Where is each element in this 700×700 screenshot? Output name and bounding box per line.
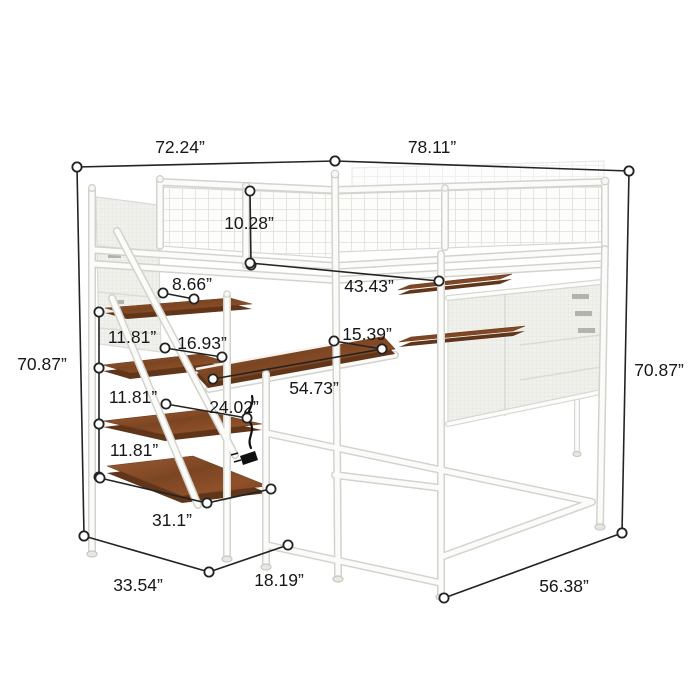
dimension-endpoint (329, 336, 338, 345)
dimension-endpoint (624, 166, 633, 175)
dimension-endpoint (72, 162, 81, 171)
dimension-endpoint (158, 288, 167, 297)
dimension-endpoint (439, 593, 448, 602)
dimension-endpoint (245, 258, 254, 267)
dimension-label: 72.24” (155, 137, 205, 157)
dimension-endpoint (377, 344, 386, 353)
dimension-bed-width-top-left: 72.24” (72, 137, 339, 172)
dimension-floor-depth-left: 33.54” (79, 531, 213, 595)
diagram-canvas: 72.24”78.11”70.87”70.87”10.28”8.66”43.43… (0, 0, 700, 700)
dimension-endpoint (160, 343, 169, 352)
dimension-endpoint (94, 419, 103, 428)
dimension-label: 78.11” (408, 137, 456, 157)
dimension-label: 10.28” (224, 213, 274, 233)
dimension-endpoint (95, 473, 104, 482)
dimension-floor-stair-depth: 18.19” (204, 540, 304, 590)
dimension-label: 54.73” (289, 378, 339, 398)
dimension-label: 70.87” (17, 354, 67, 374)
dimension-endpoint (79, 531, 88, 540)
dimension-endpoint (202, 498, 211, 507)
dimension-label: 70.87” (634, 360, 684, 380)
dimension-endpoint (266, 484, 275, 493)
mesh-pocket-mark (572, 294, 589, 299)
dimension-endpoint (617, 528, 626, 537)
dimension-overall-height-right: 70.87” (617, 166, 684, 537)
dimension-endpoint (94, 363, 103, 372)
dimension-label: 8.66” (172, 274, 212, 294)
dimension-endpoint (283, 540, 292, 549)
dimension-endpoint (189, 294, 198, 303)
dimension-label: 11.81” (109, 387, 157, 407)
dimension-label: 56.38” (539, 576, 589, 596)
dimension-label: 15.39” (342, 324, 392, 344)
dimension-label: 18.19” (254, 570, 304, 590)
dimension-endpoint (94, 307, 103, 316)
dimension-top-shelf-depth: 8.66” (158, 274, 212, 304)
dimension-label: 11.81” (108, 327, 156, 347)
dimension-floor-length-right: 56.38” (439, 528, 626, 602)
dimension-overall-height-left: 70.87” (17, 162, 88, 540)
guardrail-front (337, 186, 605, 252)
dimension-endpoint (217, 352, 226, 361)
mesh-pocket-mark (575, 311, 592, 316)
dimension-label: 43.43” (344, 276, 394, 296)
mesh-pocket-mark (578, 328, 595, 333)
dimension-label: 31.1” (152, 510, 192, 530)
dimension-label: 16.93” (177, 333, 227, 353)
dimension-endpoint (208, 374, 217, 383)
dimension-label: 24.02” (209, 397, 259, 417)
dimension-diagram: 72.24”78.11”70.87”70.87”10.28”8.66”43.43… (0, 0, 700, 700)
dimension-label: 33.54” (113, 575, 163, 595)
dimension-endpoint (434, 276, 443, 285)
dimension-endpoint (161, 399, 170, 408)
dimension-endpoint (204, 567, 213, 576)
dimension-endpoint (330, 156, 339, 165)
dimension-label: 11.81” (110, 440, 158, 460)
dimension-endpoint (245, 186, 254, 195)
